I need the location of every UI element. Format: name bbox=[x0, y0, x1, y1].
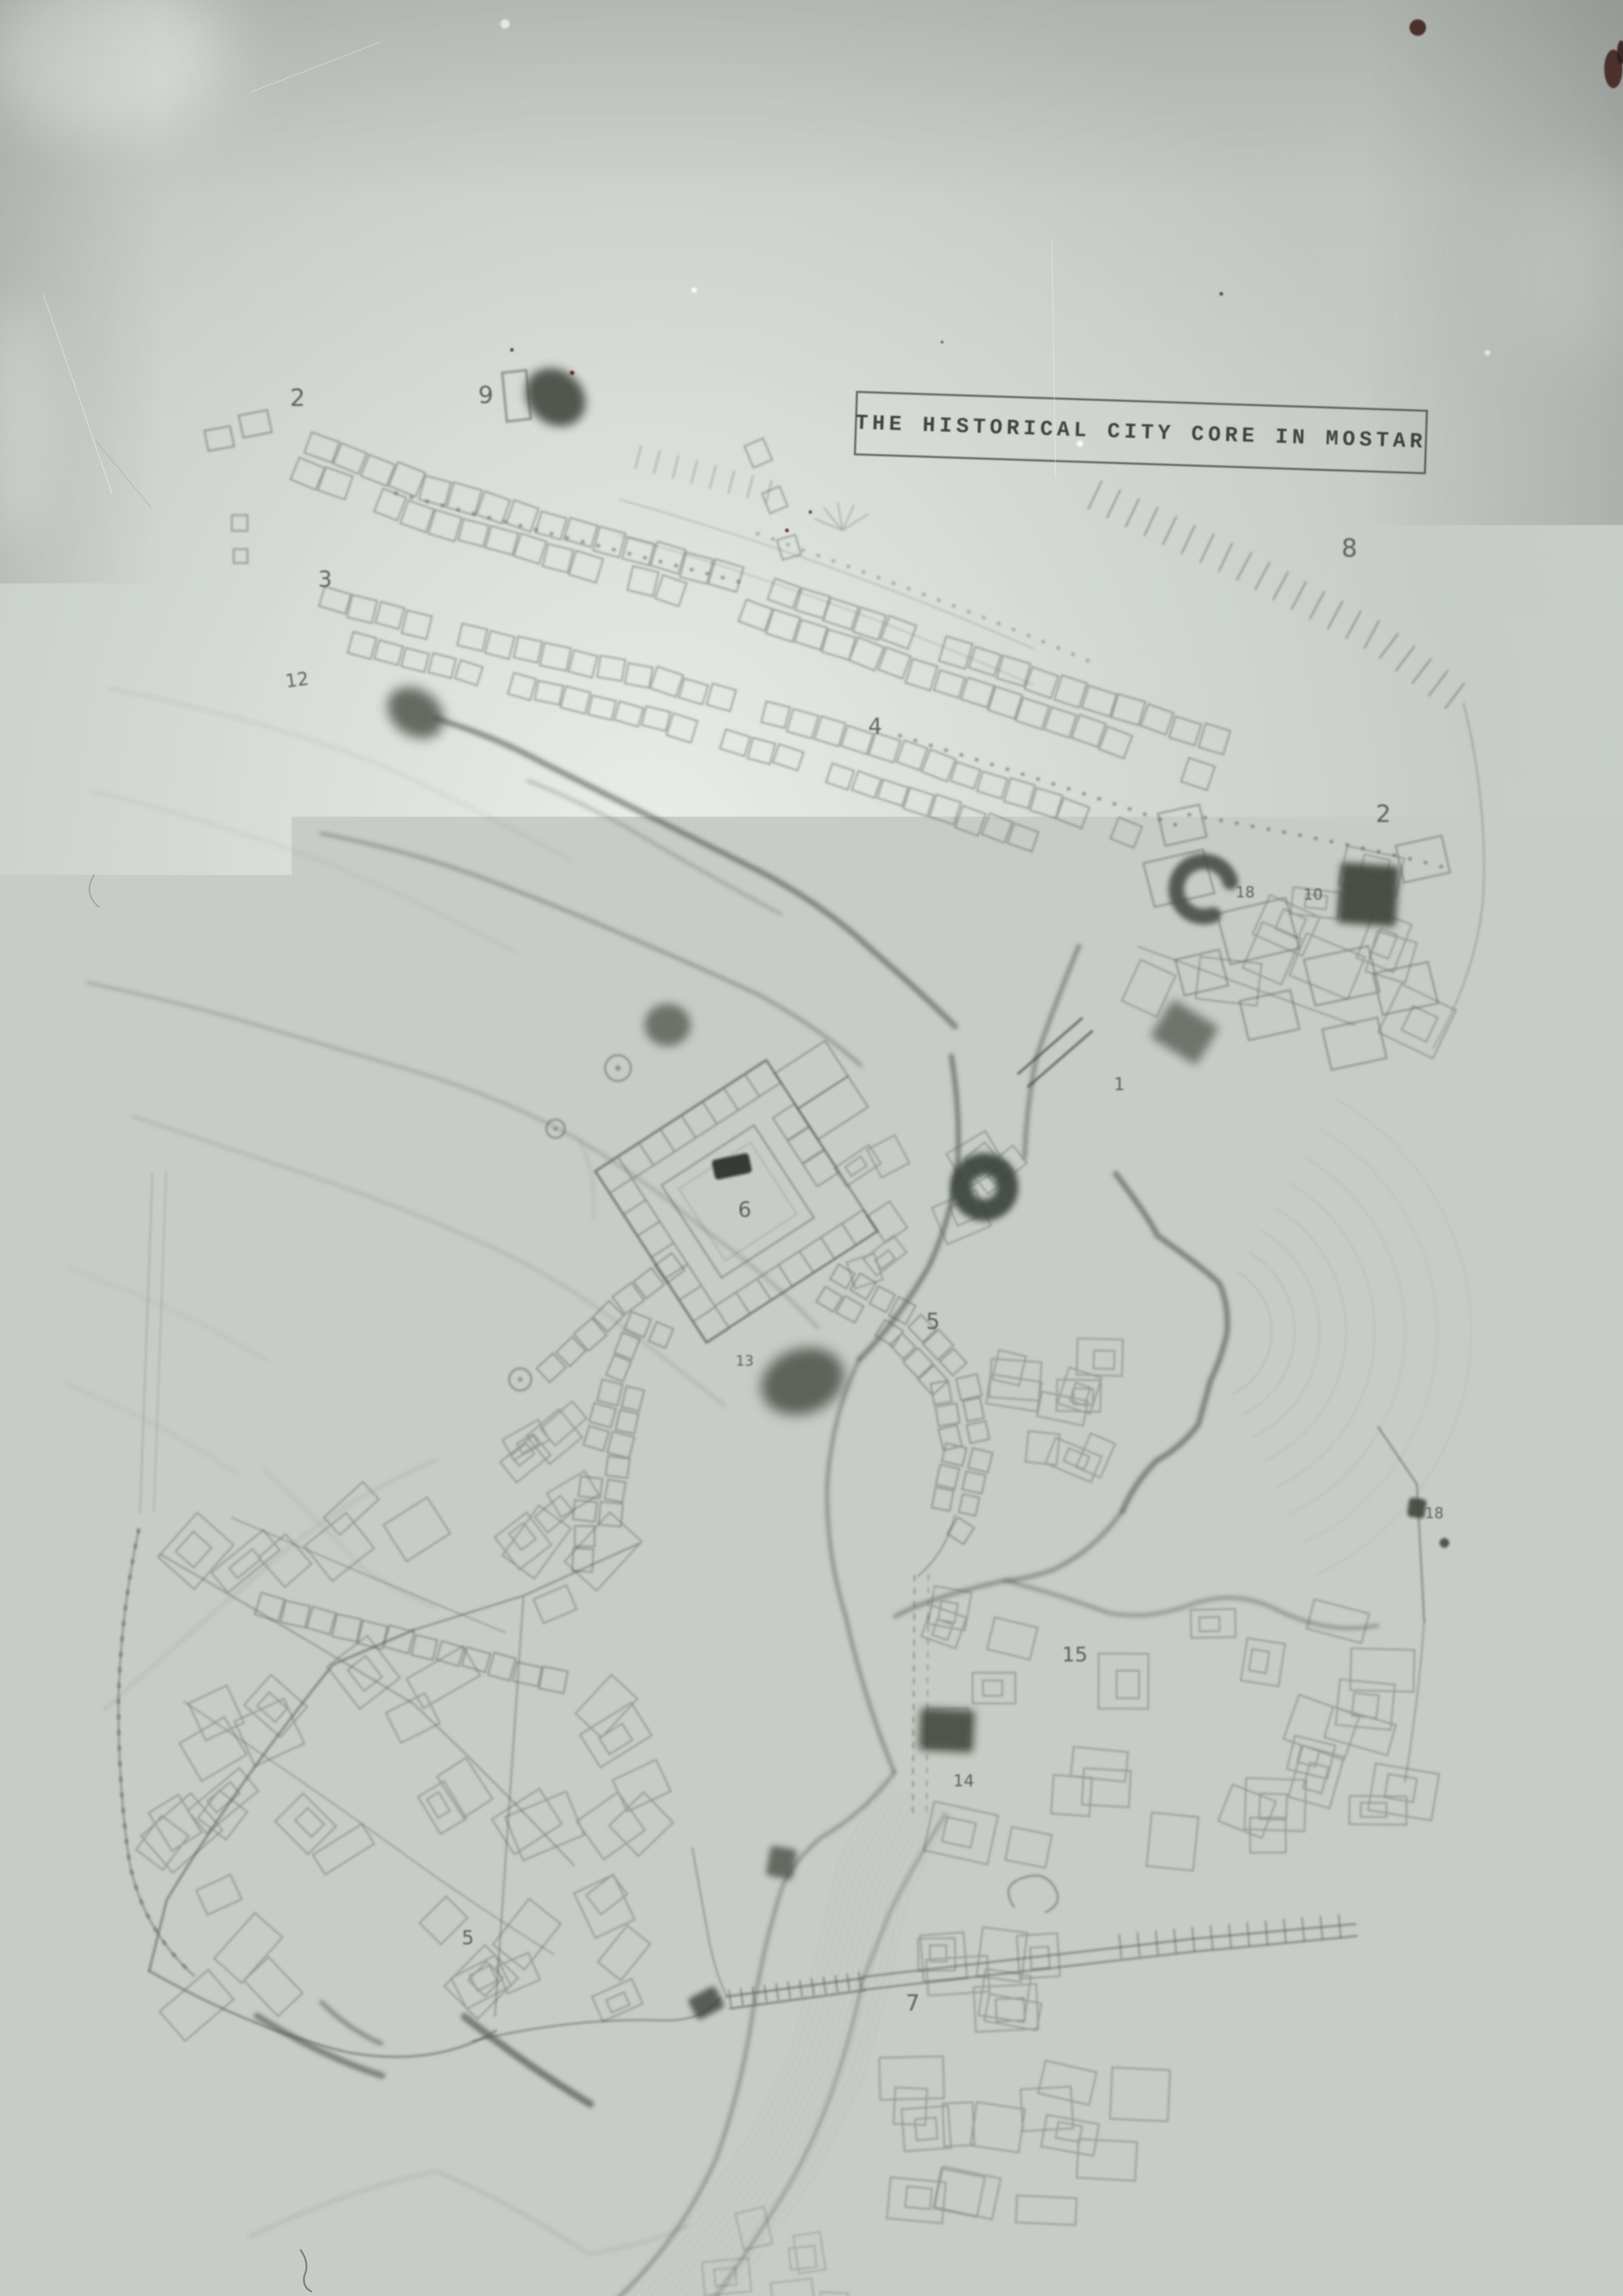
west-wall bbox=[118, 1530, 194, 1975]
left-road bbox=[154, 1172, 166, 1512]
river-hatch-line bbox=[667, 1804, 933, 2296]
dot-mark bbox=[1438, 1536, 1451, 1549]
contour bbox=[92, 791, 514, 951]
river-hatch-line bbox=[623, 1778, 882, 2296]
map-label-8: 8 bbox=[1342, 534, 1357, 563]
map-label-10: 10 bbox=[1303, 885, 1323, 903]
building-footprints bbox=[136, 370, 1456, 2296]
map-label-2: 2 bbox=[1376, 800, 1391, 828]
slide-photo: 2983124218101651315141857 THE HISTORICAL… bbox=[0, 0, 1623, 2296]
bazaar-road-edge bbox=[620, 500, 1033, 648]
east-bank-upper bbox=[1025, 946, 1079, 1157]
courtyard-stone bbox=[711, 1153, 752, 1180]
lower-bridge bbox=[726, 1978, 865, 2009]
river-hatch-line bbox=[681, 1813, 950, 2296]
dotted-path bbox=[900, 736, 1175, 825]
street bbox=[918, 1515, 955, 1576]
contour bbox=[69, 1268, 266, 1360]
twig-mark bbox=[301, 2250, 311, 2291]
map-circle-symbol-dot bbox=[615, 1065, 621, 1071]
gorge-bank bbox=[436, 719, 955, 1026]
map-label-12: 12 bbox=[284, 668, 310, 692]
street bbox=[161, 1554, 574, 1865]
map-circle-symbol-dot bbox=[554, 1127, 558, 1131]
water-ripple bbox=[1302, 1129, 1437, 1544]
wall-gate-mark bbox=[232, 515, 247, 563]
ink-marks bbox=[377, 356, 1451, 2021]
river-and-terrain bbox=[64, 689, 1377, 2296]
quarter-boundary bbox=[149, 1971, 496, 2057]
stain-diamond-top bbox=[514, 356, 597, 439]
promontory-shore bbox=[1116, 1174, 1227, 1511]
riverside-street bbox=[692, 1848, 726, 1995]
shop-row bbox=[744, 439, 801, 560]
water-ripple bbox=[1232, 1272, 1272, 1394]
city-map-drawing: 2983124218101651315141857 bbox=[0, 0, 1623, 2296]
building-block bbox=[702, 2207, 848, 2296]
street-dashed bbox=[913, 1576, 915, 1818]
complex-cell-row bbox=[596, 1061, 877, 1343]
stain-left bbox=[377, 676, 453, 749]
quarter-boundary bbox=[149, 1630, 413, 1971]
complex-cells bbox=[596, 1061, 877, 1343]
stain-square-east bbox=[1337, 862, 1400, 927]
roads-and-walls bbox=[118, 447, 1484, 2057]
boundary-line bbox=[1433, 703, 1484, 1048]
contour bbox=[64, 1383, 239, 1475]
hatched-road-ticks bbox=[635, 447, 772, 502]
lower-curve-line bbox=[249, 2171, 689, 2254]
water-ripple bbox=[1275, 1183, 1375, 1487]
map-label-2: 2 bbox=[290, 384, 305, 412]
complex-wing bbox=[798, 1076, 868, 1140]
stream bbox=[579, 1140, 594, 1218]
shop-row bbox=[304, 432, 1230, 754]
west-wall-dots bbox=[118, 1530, 194, 1975]
map-symbols bbox=[509, 1055, 631, 1390]
map-label-15: 15 bbox=[1062, 1643, 1088, 1666]
map-label-18: 18 bbox=[1425, 1504, 1444, 1522]
map-title: THE HISTORICAL CITY CORE IN MOSTAR bbox=[855, 411, 1427, 454]
embankment-road bbox=[864, 1936, 1357, 1990]
stain-square-south bbox=[919, 1708, 975, 1753]
hill-road bbox=[103, 1460, 436, 1711]
shop-row bbox=[572, 1311, 651, 1572]
gorge-bank bbox=[528, 781, 781, 914]
tower-18-square bbox=[1407, 1497, 1426, 1519]
left-road bbox=[140, 1173, 152, 1513]
map-label-1: 1 bbox=[1114, 1074, 1125, 1094]
abutment-wedge bbox=[687, 1986, 725, 2021]
street bbox=[495, 1597, 523, 2016]
riverside-blob bbox=[766, 1845, 797, 1880]
gorge-bank bbox=[321, 833, 861, 1065]
old-bridge bbox=[1018, 1019, 1092, 1086]
map-label-5: 5 bbox=[462, 1926, 474, 1949]
contour bbox=[110, 689, 569, 860]
dome-blob bbox=[645, 1004, 691, 1046]
road-loop bbox=[1008, 1875, 1057, 1912]
map-label-3: 3 bbox=[318, 567, 332, 592]
west-bank-bridge bbox=[859, 1056, 958, 1359]
map-label-6: 6 bbox=[738, 1197, 751, 1222]
complex-wing bbox=[775, 1041, 848, 1109]
embankment-road bbox=[863, 1924, 1355, 1977]
map-label-13: 13 bbox=[736, 1353, 753, 1369]
map-label-5: 5 bbox=[926, 1309, 940, 1334]
row-start-blocks bbox=[204, 410, 272, 451]
river-hatch-line bbox=[662, 1801, 927, 2296]
street-fan bbox=[815, 503, 868, 530]
map-label-18: 18 bbox=[1236, 883, 1255, 901]
map-label-14: 14 bbox=[953, 1772, 974, 1790]
map-circle-symbol-dot bbox=[518, 1377, 523, 1382]
bold-bank-stroke bbox=[321, 2002, 381, 2043]
city-wall bbox=[1405, 1621, 1424, 1782]
west-bank-lower bbox=[827, 1359, 894, 1773]
tower-ring-west bbox=[950, 1153, 1018, 1221]
map-label-9: 9 bbox=[478, 382, 493, 409]
quarter-boundary bbox=[413, 1544, 638, 1630]
stream bbox=[133, 1117, 725, 1406]
shop-row bbox=[830, 1264, 993, 1544]
water-ripple bbox=[1242, 1252, 1295, 1415]
tower-ring-east bbox=[1176, 861, 1230, 917]
hatched-road-ticks bbox=[1119, 1915, 1341, 1958]
water-ripple bbox=[1316, 1099, 1471, 1575]
shop-row bbox=[599, 1322, 674, 1527]
map-label-7: 7 bbox=[906, 1990, 920, 2016]
hair-curl bbox=[90, 875, 99, 907]
building-block bbox=[986, 1339, 1123, 1482]
complex-outer-wall bbox=[595, 1060, 878, 1343]
street-dashed bbox=[927, 1575, 928, 1818]
map-label-4: 4 bbox=[868, 714, 882, 739]
map-number-labels: 2983124218101651315141857 bbox=[284, 382, 1444, 2016]
hatched-road-ticks bbox=[1089, 481, 1464, 708]
